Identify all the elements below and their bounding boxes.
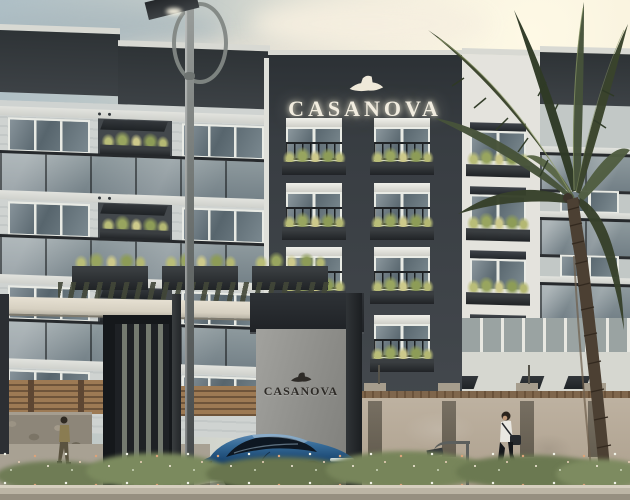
recessed-bay: [98, 286, 172, 325]
window: [182, 375, 264, 412]
planter-box: [282, 359, 346, 372]
shutter-box: [286, 315, 342, 324]
roof-parapet: [0, 30, 120, 96]
tower-window-bay: [286, 118, 342, 176]
planter-box: [282, 227, 346, 240]
vent-dot: [108, 113, 111, 116]
shutter-box: [286, 118, 342, 127]
wood-fence: [0, 380, 135, 414]
shutter-box: [286, 247, 342, 256]
vent-dot: [98, 112, 101, 115]
vent-dot: [98, 280, 101, 283]
planter-box: [282, 291, 346, 304]
wall-light-post: [378, 365, 380, 384]
lamp-joint: [184, 72, 195, 80]
window: [182, 207, 264, 244]
window: [182, 123, 264, 160]
window: [182, 291, 264, 328]
lamp-ornament-ellipse: [172, 2, 228, 84]
recessed-bay: [98, 202, 172, 241]
recessed-bay: [98, 118, 172, 157]
pilaster-cap: [364, 383, 386, 391]
vent-dot: [98, 196, 101, 199]
head: [61, 417, 68, 424]
tower-window-bay: [286, 315, 342, 373]
tower-window-bay: [286, 183, 342, 241]
lamp-glow: [166, 8, 182, 15]
shutter-box: [286, 183, 342, 192]
floor: [0, 106, 268, 201]
floor: [0, 274, 268, 369]
palm-tree: [398, 0, 630, 500]
floor: [0, 190, 268, 285]
window: [8, 117, 90, 154]
architectural-render: CASANOVA: [0, 0, 630, 500]
window: [8, 285, 90, 322]
shirt: [59, 425, 70, 442]
vent-dot: [108, 281, 111, 284]
vent-dot: [108, 197, 111, 200]
fence-post: [78, 380, 84, 414]
fence-post: [28, 380, 34, 414]
tower-window-bay: [286, 247, 342, 305]
window: [8, 201, 90, 238]
fedora-hat-icon: [348, 72, 384, 96]
palm-fronds: [428, 2, 630, 330]
fence-post: [126, 380, 132, 414]
curb: [0, 485, 630, 500]
planter-box: [282, 162, 346, 175]
